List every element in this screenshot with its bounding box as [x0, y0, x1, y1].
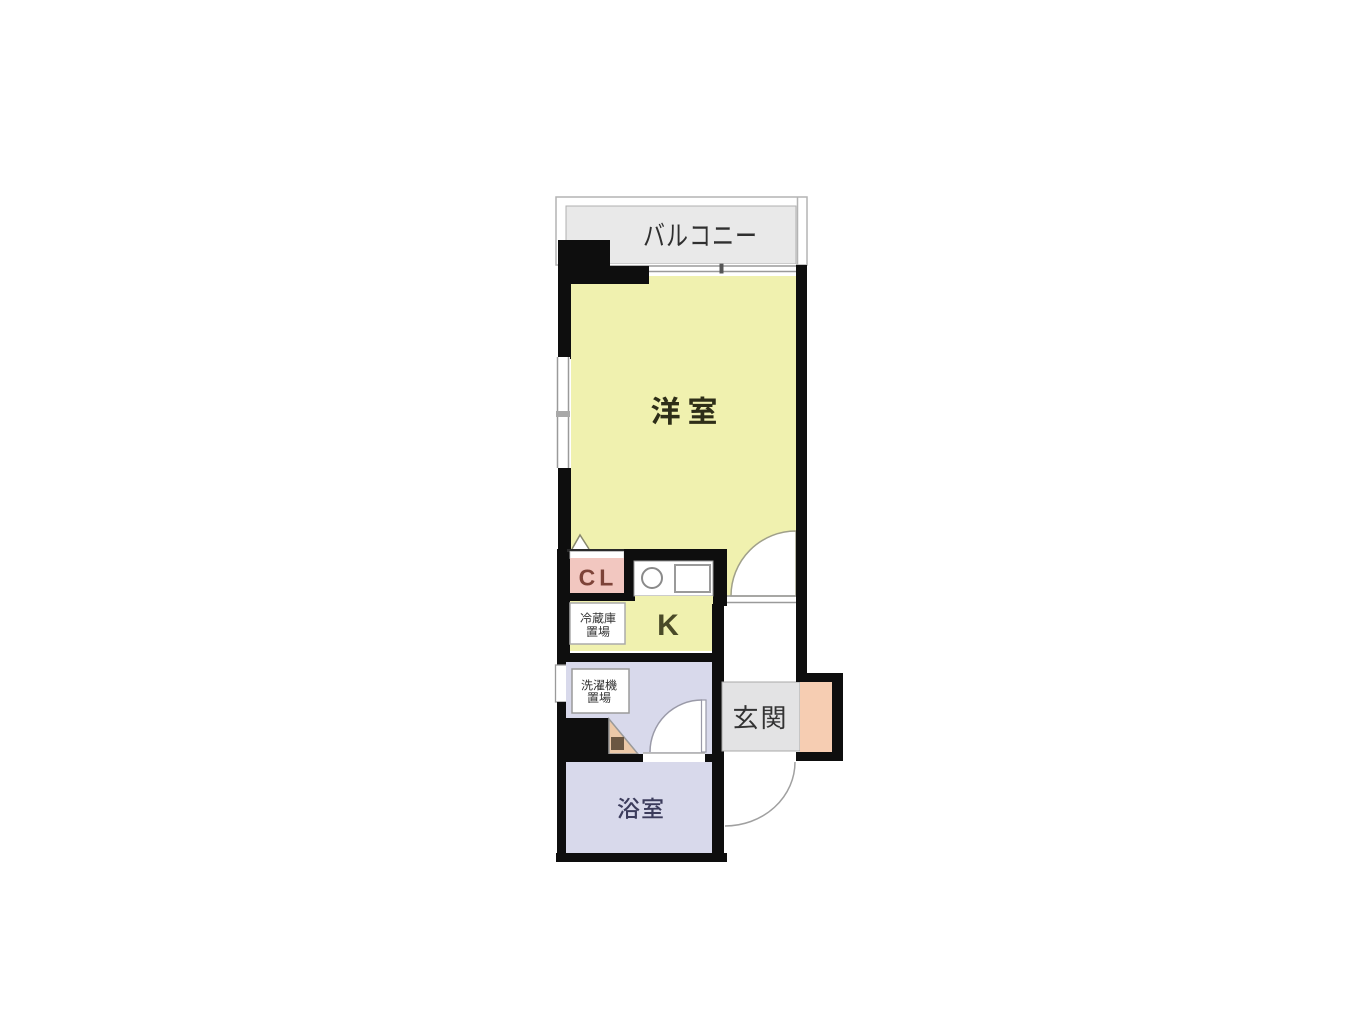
svg-text:K: K [657, 609, 679, 642]
svg-text:CL: CL [579, 565, 618, 591]
